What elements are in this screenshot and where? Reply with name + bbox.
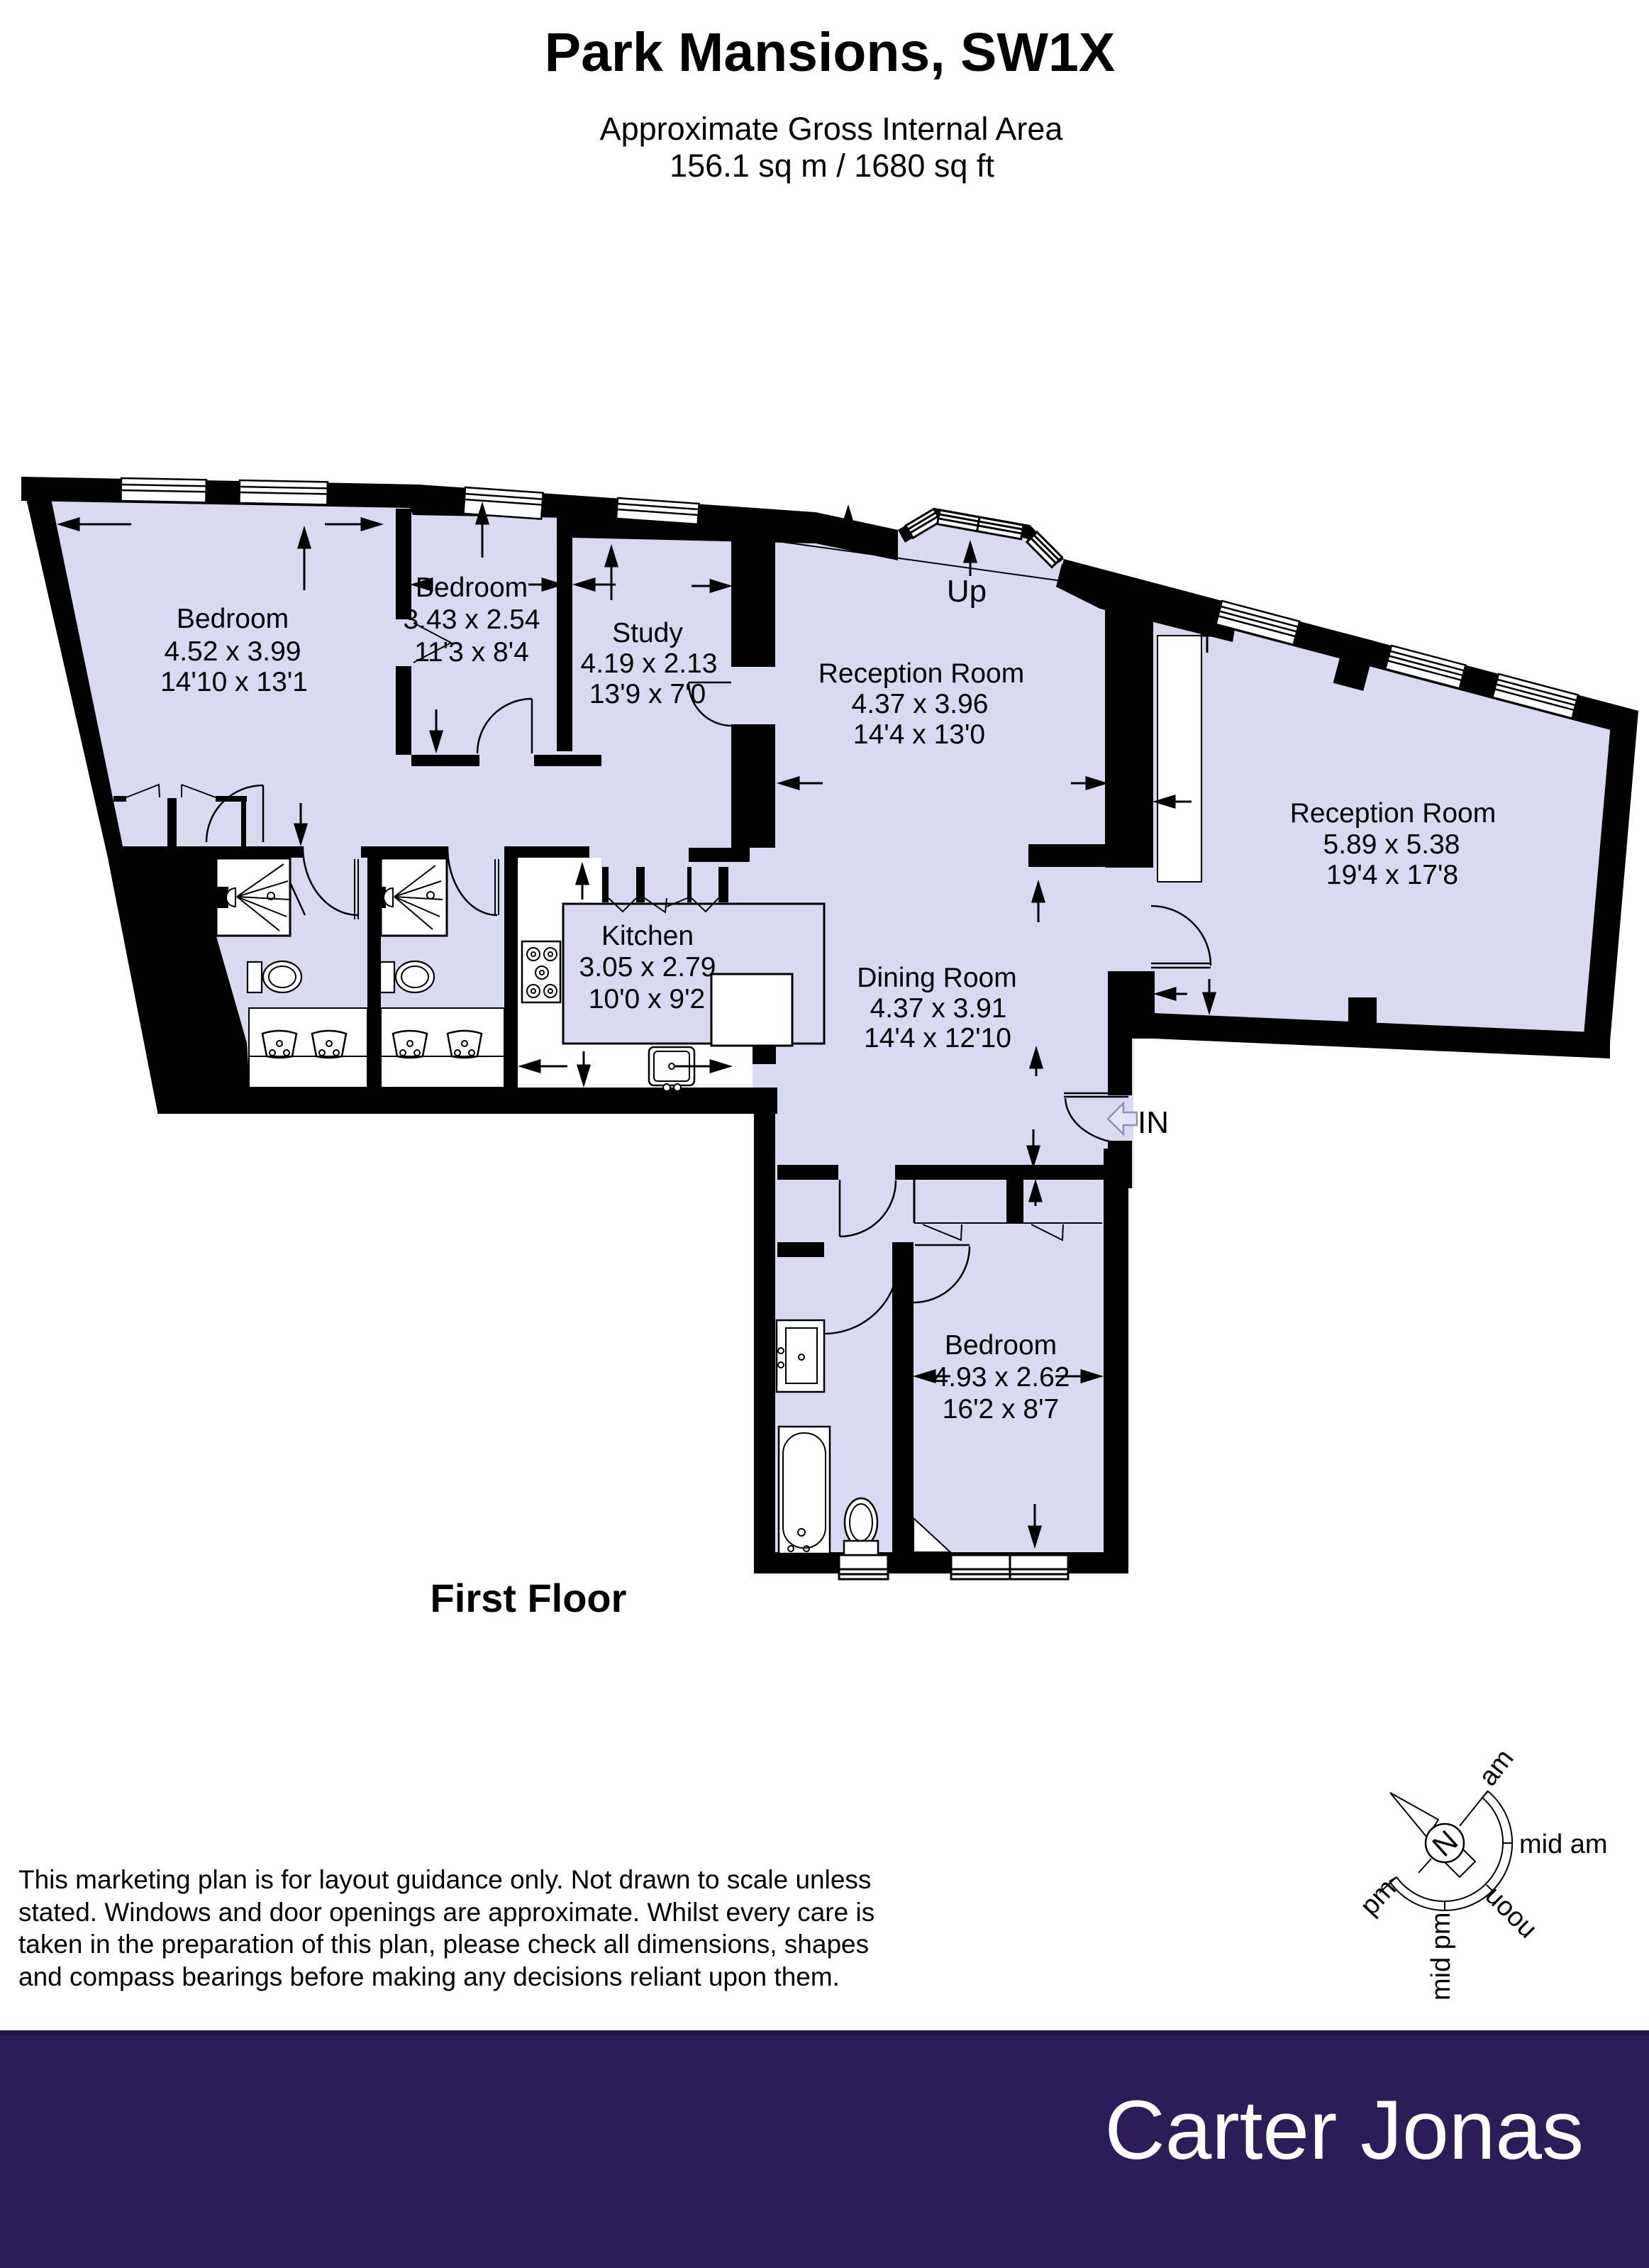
svg-text:am: am: [1473, 1744, 1520, 1791]
svg-text:4.37 x 3.96: 4.37 x 3.96: [852, 689, 989, 719]
svg-text:4.37 x 3.91: 4.37 x 3.91: [870, 993, 1007, 1024]
svg-text:19'4 x 17'8: 19'4 x 17'8: [1326, 860, 1458, 890]
svg-text:Reception Room: Reception Room: [1290, 798, 1496, 829]
svg-text:14'10 x 13'1: 14'10 x 13'1: [160, 667, 308, 697]
svg-text:Park Mansions, SW1X: Park Mansions, SW1X: [545, 22, 1115, 83]
svg-text:First Floor: First Floor: [431, 1576, 627, 1620]
svg-text:Bedroom: Bedroom: [945, 1330, 1057, 1361]
svg-text:11'3 x 8'4: 11'3 x 8'4: [414, 637, 529, 668]
svg-text:Approximate Gross Internal Are: Approximate Gross Internal Area: [600, 111, 1064, 147]
svg-text:4.52 x 3.99: 4.52 x 3.99: [165, 636, 301, 667]
svg-text:Kitchen: Kitchen: [601, 921, 694, 951]
svg-text:14'4 x 12'10: 14'4 x 12'10: [864, 1023, 1011, 1053]
svg-text:mid pm: mid pm: [1426, 1912, 1456, 2001]
svg-text:13'9 x 7'0: 13'9 x 7'0: [589, 679, 706, 709]
svg-text:Study: Study: [612, 618, 683, 648]
svg-text:pm: pm: [1355, 1874, 1402, 1921]
svg-text:16'2 x 8'7: 16'2 x 8'7: [943, 1394, 1060, 1425]
svg-text:Up: Up: [947, 574, 987, 609]
svg-text:Reception Room: Reception Room: [818, 658, 1024, 689]
svg-text:Carter Jonas: Carter Jonas: [1104, 2084, 1584, 2177]
svg-text:stated. Windows and door openi: stated. Windows and door openings are ap…: [18, 1898, 875, 1927]
svg-text:and compass bearings before ma: and compass bearings before making any d…: [18, 1962, 840, 1991]
svg-text:Bedroom: Bedroom: [416, 572, 528, 603]
svg-text:4.93 x 2.62: 4.93 x 2.62: [933, 1362, 1070, 1393]
svg-text:taken in the preparation of th: taken in the preparation of this plan, p…: [18, 1930, 869, 1959]
svg-text:Dining Room: Dining Room: [857, 963, 1016, 993]
svg-text:Bedroom: Bedroom: [177, 604, 289, 634]
svg-text:This marketing plan is for lay: This marketing plan is for layout guidan…: [18, 1865, 871, 1894]
svg-text:4.19 x 2.13: 4.19 x 2.13: [581, 648, 718, 679]
svg-text:3.05 x 2.79: 3.05 x 2.79: [579, 952, 716, 983]
svg-text:5.89 x 5.38: 5.89 x 5.38: [1323, 829, 1460, 860]
svg-text:10'0 x 9'2: 10'0 x 9'2: [589, 984, 706, 1014]
svg-text:IN: IN: [1138, 1105, 1169, 1140]
svg-text:3.43 x 2.54: 3.43 x 2.54: [404, 604, 540, 635]
svg-text:noon: noon: [1477, 1883, 1540, 1946]
svg-text:mid am: mid am: [1519, 1830, 1608, 1859]
svg-text:14'4 x 13'0: 14'4 x 13'0: [853, 719, 985, 750]
svg-text:156.1 sq m / 1680 sq ft: 156.1 sq m / 1680 sq ft: [670, 148, 994, 184]
